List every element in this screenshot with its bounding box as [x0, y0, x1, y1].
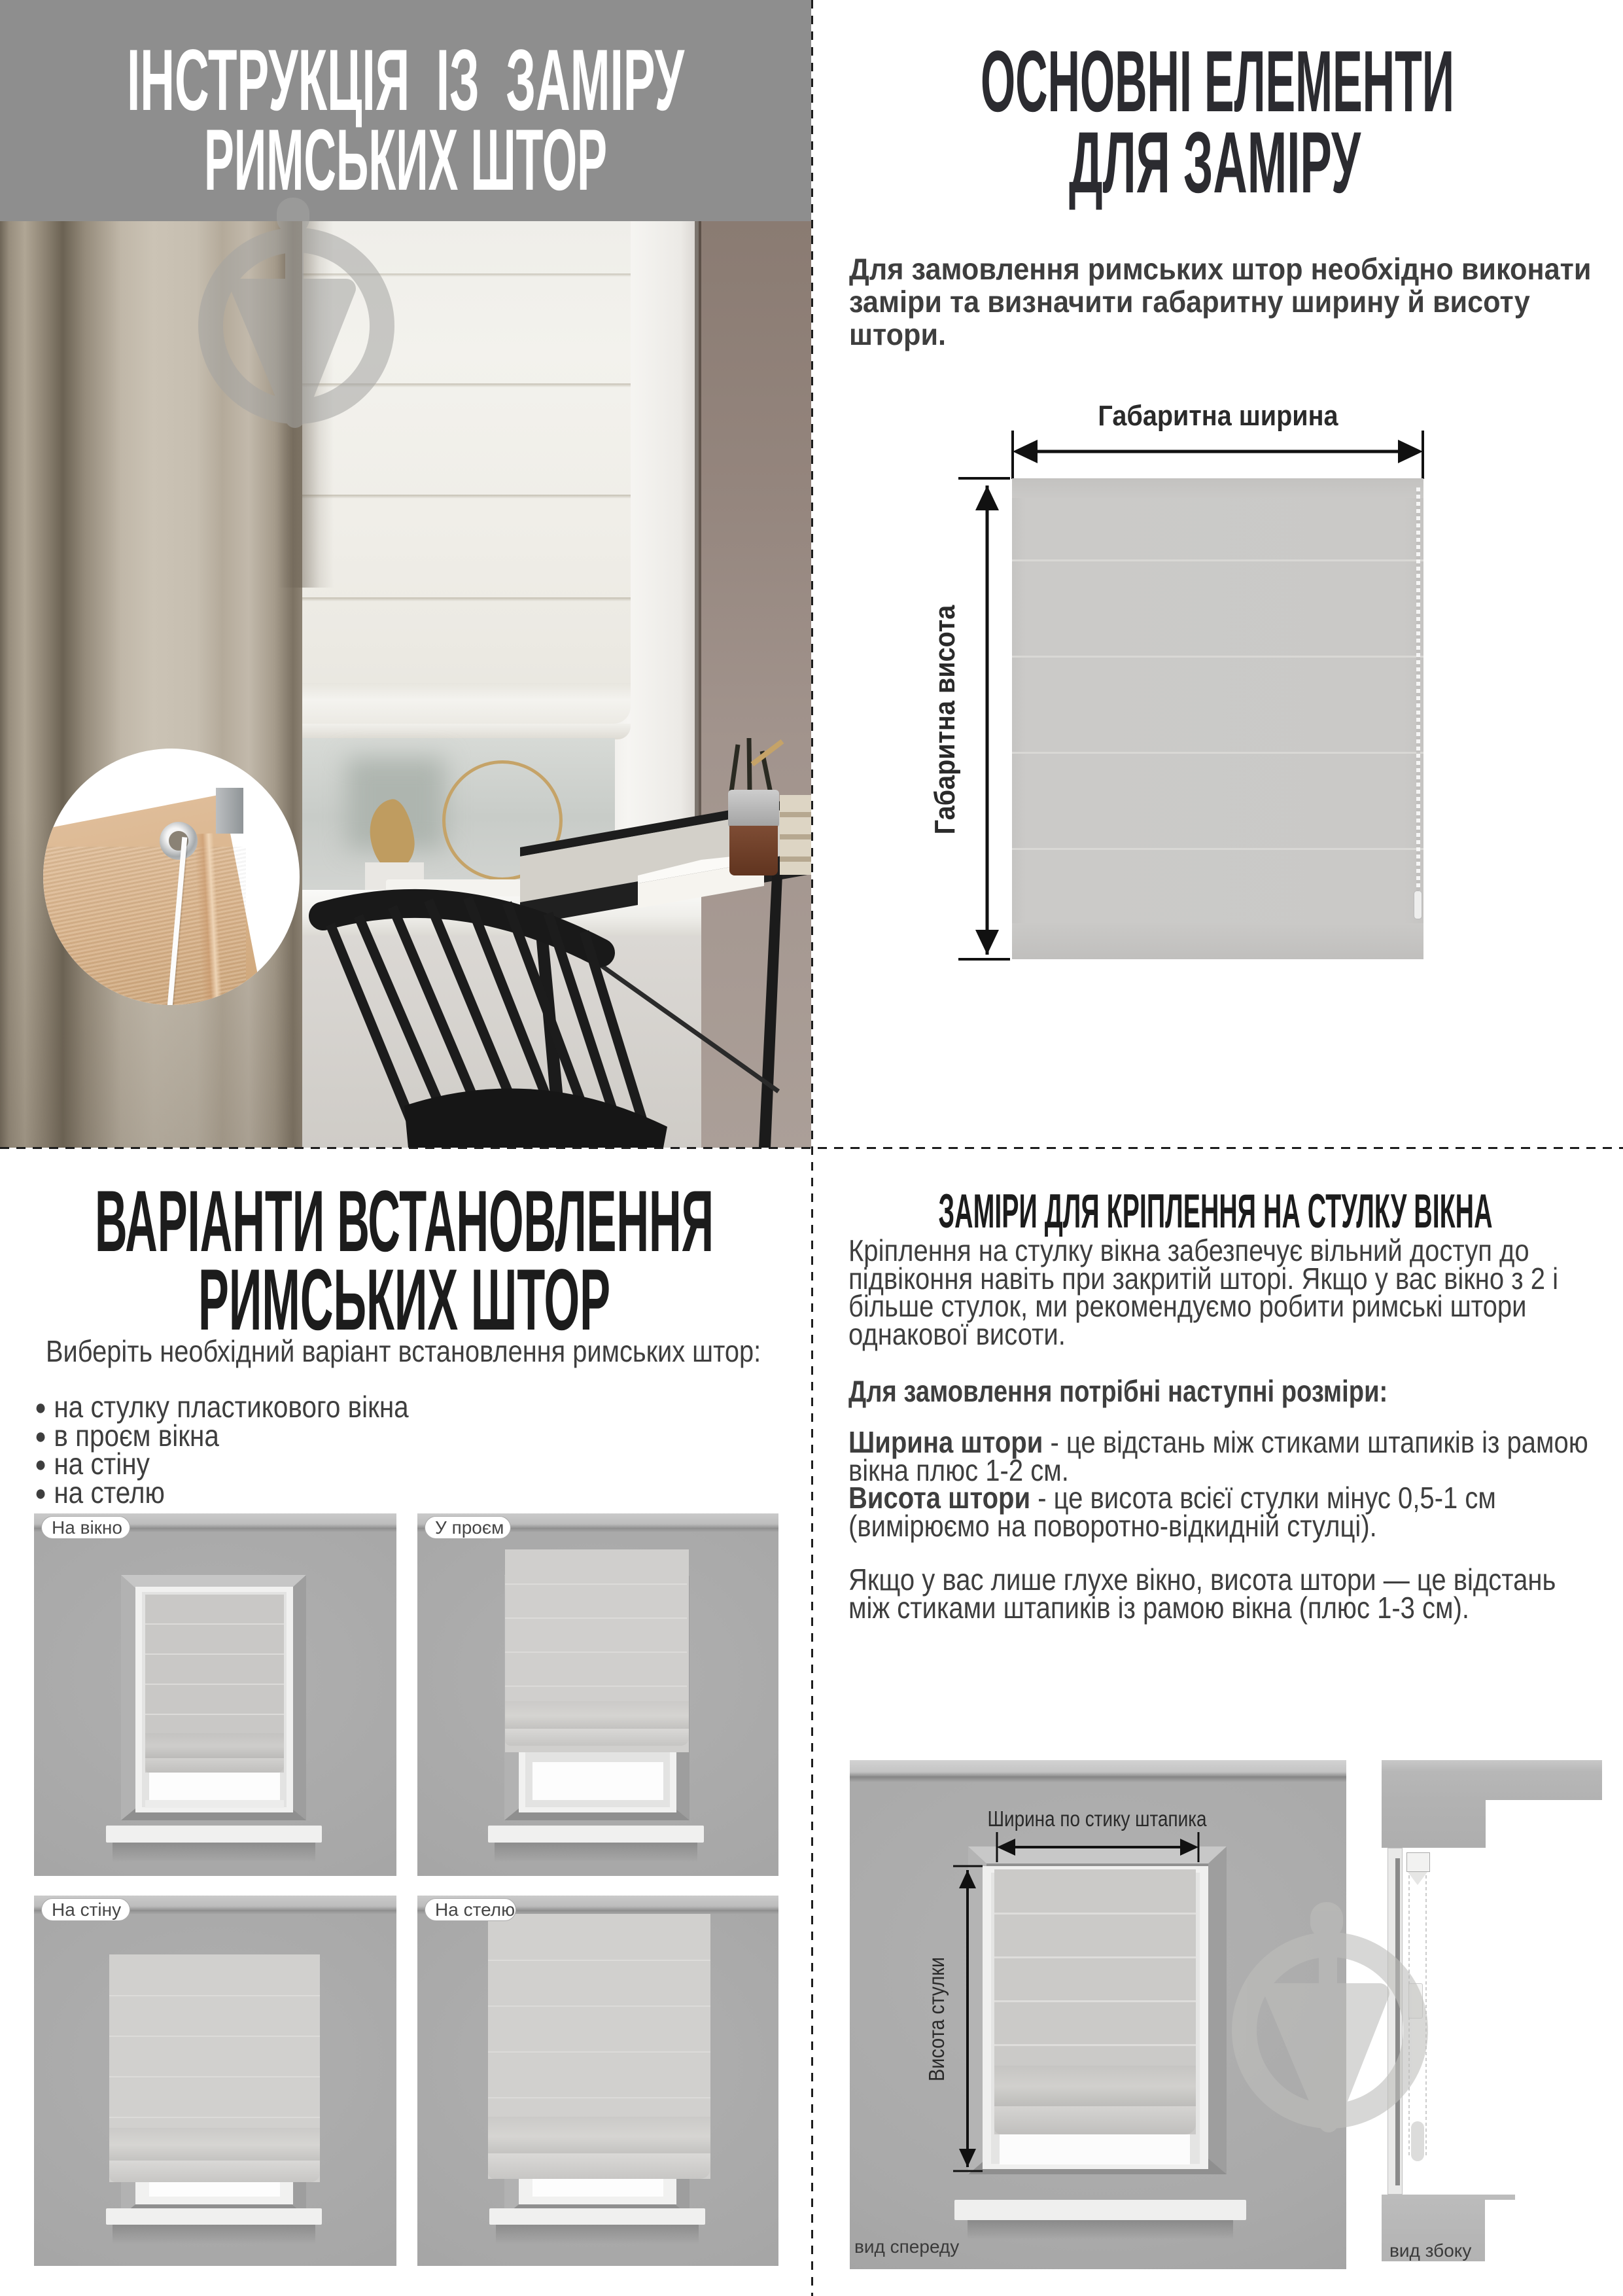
svg-text:ЗАМІРИ ДЛЯ КРІПЛЕННЯ НА СТУЛКУ: ЗАМІРИ ДЛЯ КРІПЛЕННЯ НА СТУЛКУ ВІКНА — [939, 1185, 1493, 1237]
svg-text:РИМСЬКИХ ШТОР: РИМСЬКИХ ШТОР — [204, 112, 607, 209]
svg-text:ДЛЯ ЗАМІРУ: ДЛЯ ЗАМІРУ — [1069, 115, 1361, 211]
svg-text:РИМСЬКИХ ШТОР: РИМСЬКИХ ШТОР — [198, 1252, 610, 1338]
